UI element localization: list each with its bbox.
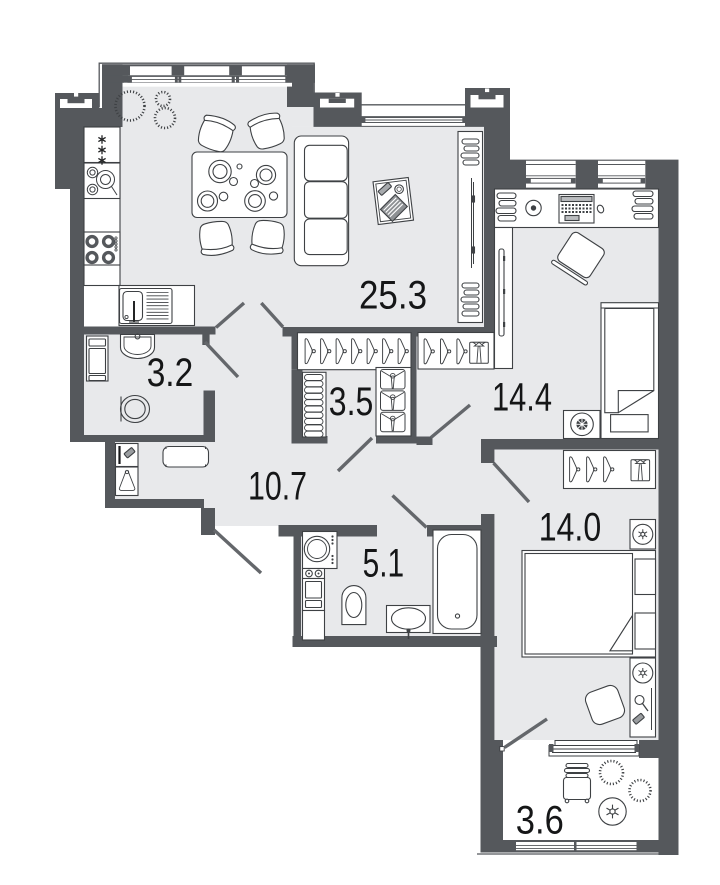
svg-text:10.7: 10.7 <box>248 464 307 508</box>
svg-text:3.5: 3.5 <box>329 380 374 424</box>
svg-text:14.4: 14.4 <box>492 375 552 419</box>
svg-text:14.0: 14.0 <box>539 505 602 549</box>
svg-text:25.3: 25.3 <box>359 274 427 318</box>
svg-text:3.2: 3.2 <box>147 351 194 395</box>
svg-text:5.1: 5.1 <box>363 542 405 586</box>
svg-text:3.6: 3.6 <box>516 798 564 842</box>
